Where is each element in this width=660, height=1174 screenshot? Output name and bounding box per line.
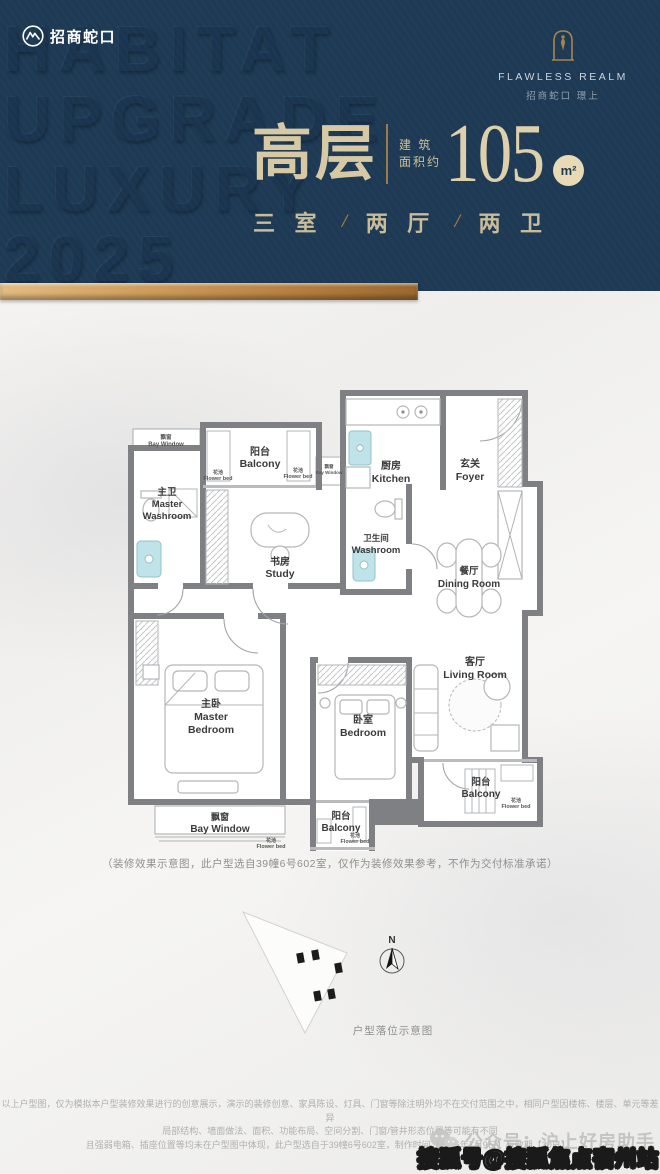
room-label-cn: 主卫	[157, 486, 177, 498]
floorplan-note: （装修效果示意图，此户型选自39幢6号602室，仅作为装修效果参考，不作为交付标…	[0, 856, 660, 871]
siteplan-diagram: N 户型落位示意图	[215, 898, 455, 1073]
compass: N	[380, 935, 404, 973]
cmsk-logo-icon	[22, 25, 44, 47]
room-label-en: Bedroom	[340, 727, 386, 739]
room-label-cn: 飘窗	[211, 811, 229, 822]
room-label-en: Balcony	[240, 458, 281, 470]
room-label-en: Foyer	[456, 471, 485, 483]
layout-spec: 三 室 / 两 厅 / 两 卫	[253, 206, 549, 238]
room-label-cn: 阳台	[250, 445, 270, 458]
room-label-en: Kitchen	[372, 473, 411, 485]
flower-bed-en: Flower bed	[501, 804, 530, 810]
room-label-en: Dining Room	[438, 579, 500, 590]
siteplan-caption: 户型落位示意图	[353, 1024, 434, 1037]
area-unit-badge: m²	[553, 155, 584, 186]
room-label-cn: 阳台	[331, 810, 351, 822]
flower-bed-cn: 花池	[213, 469, 223, 476]
room-label-cn: 卧室	[353, 713, 373, 726]
poster-page: HABITAT UPGRADE LUXURY 2025 招商蛇口 FLAWLES…	[0, 0, 660, 1174]
room-label-en: Bay Window	[316, 470, 343, 475]
spec-baths: 两 卫	[478, 206, 549, 238]
room-label-en: Master	[152, 499, 183, 510]
spec-separator: /	[342, 211, 347, 233]
disclaimer-line: 以上户型图，仅为模拟本户型装修效果进行的创意展示，演示的装修创意、家具陈设、灯具…	[0, 1098, 660, 1125]
flower-bed-cn: 花池	[266, 837, 276, 844]
flower-bed-en: Flower bed	[283, 474, 312, 480]
room-label-cn: 飘窗	[160, 433, 172, 441]
spec-rooms: 三 室	[253, 206, 324, 238]
flower-bed-cn: 花池	[293, 467, 303, 474]
room-label-en: Balcony	[462, 789, 501, 800]
flower-bed-cn: 花池	[350, 832, 360, 839]
brand-left: 招商蛇口	[22, 25, 116, 47]
headline-divider	[386, 124, 388, 184]
room-label-en: Washroom	[352, 545, 401, 556]
brand-right: FLAWLESS REALM 招商蛇口 璟上	[478, 28, 648, 102]
room-label-cn: 玄关	[460, 457, 480, 470]
area-prefix: 建 筑 面积约	[399, 137, 441, 171]
compass-needle-light	[392, 948, 398, 969]
gold-divider-bar	[0, 283, 418, 300]
compass-needle-dark	[386, 948, 392, 969]
flower-bed-en: Flower bed	[340, 839, 369, 845]
headline: 高层 建 筑 面积约 105 m²	[252, 112, 584, 196]
room-label-cn: 客厅	[464, 655, 485, 668]
room-label-cn: 飘窗	[324, 463, 334, 470]
site-boundary	[243, 912, 347, 1033]
header-banner: HABITAT UPGRADE LUXURY 2025 招商蛇口 FLAWLES…	[0, 0, 660, 291]
room-label-cn: 卫生间	[363, 533, 389, 543]
room-label-en: Bay Window	[148, 442, 184, 448]
room-label-cn: 餐厅	[458, 565, 479, 577]
spec-separator: /	[455, 211, 460, 233]
unit-type-label: 高层	[252, 114, 378, 194]
brand-right-title-cn: 招商蛇口 璟上	[478, 88, 648, 102]
floorplan-drawing: 阳台 Balcony 飘窗 Bay Window 主卫 Master Washr…	[103, 373, 565, 857]
brand-right-title-en: FLAWLESS REALM	[478, 71, 648, 83]
area-prefix-line2: 面积约	[399, 154, 441, 171]
area-prefix-line1: 建 筑	[399, 137, 441, 154]
room-label-en: Bedroom	[188, 724, 234, 736]
compass-north-label: N	[388, 935, 395, 946]
room-label-cn: 书房	[270, 555, 290, 568]
room-label-en: Bay Window	[190, 824, 250, 835]
room-label-cn: 主卧	[201, 697, 221, 710]
brand-left-name: 招商蛇口	[50, 26, 116, 47]
spec-halls: 两 厅	[366, 206, 437, 238]
room-label-cn: 厨房	[381, 459, 401, 472]
sohu-watermark: 搜狐号@搜狐焦点宿州站	[418, 1143, 659, 1173]
flower-bed-en: Flower bed	[256, 844, 285, 850]
flower-bed-en: Flower bed	[203, 476, 232, 482]
room-label-en: Master	[194, 711, 228, 723]
flower-bed-cn: 花池	[511, 797, 521, 804]
flawless-realm-emblem-icon	[550, 28, 576, 62]
room-label-en: Study	[265, 568, 294, 580]
area-value: 105	[445, 112, 543, 196]
room-label-en: Living Room	[443, 669, 507, 681]
room-label-cn: 阳台	[471, 776, 491, 788]
room-label-en: Washroom	[143, 511, 192, 522]
